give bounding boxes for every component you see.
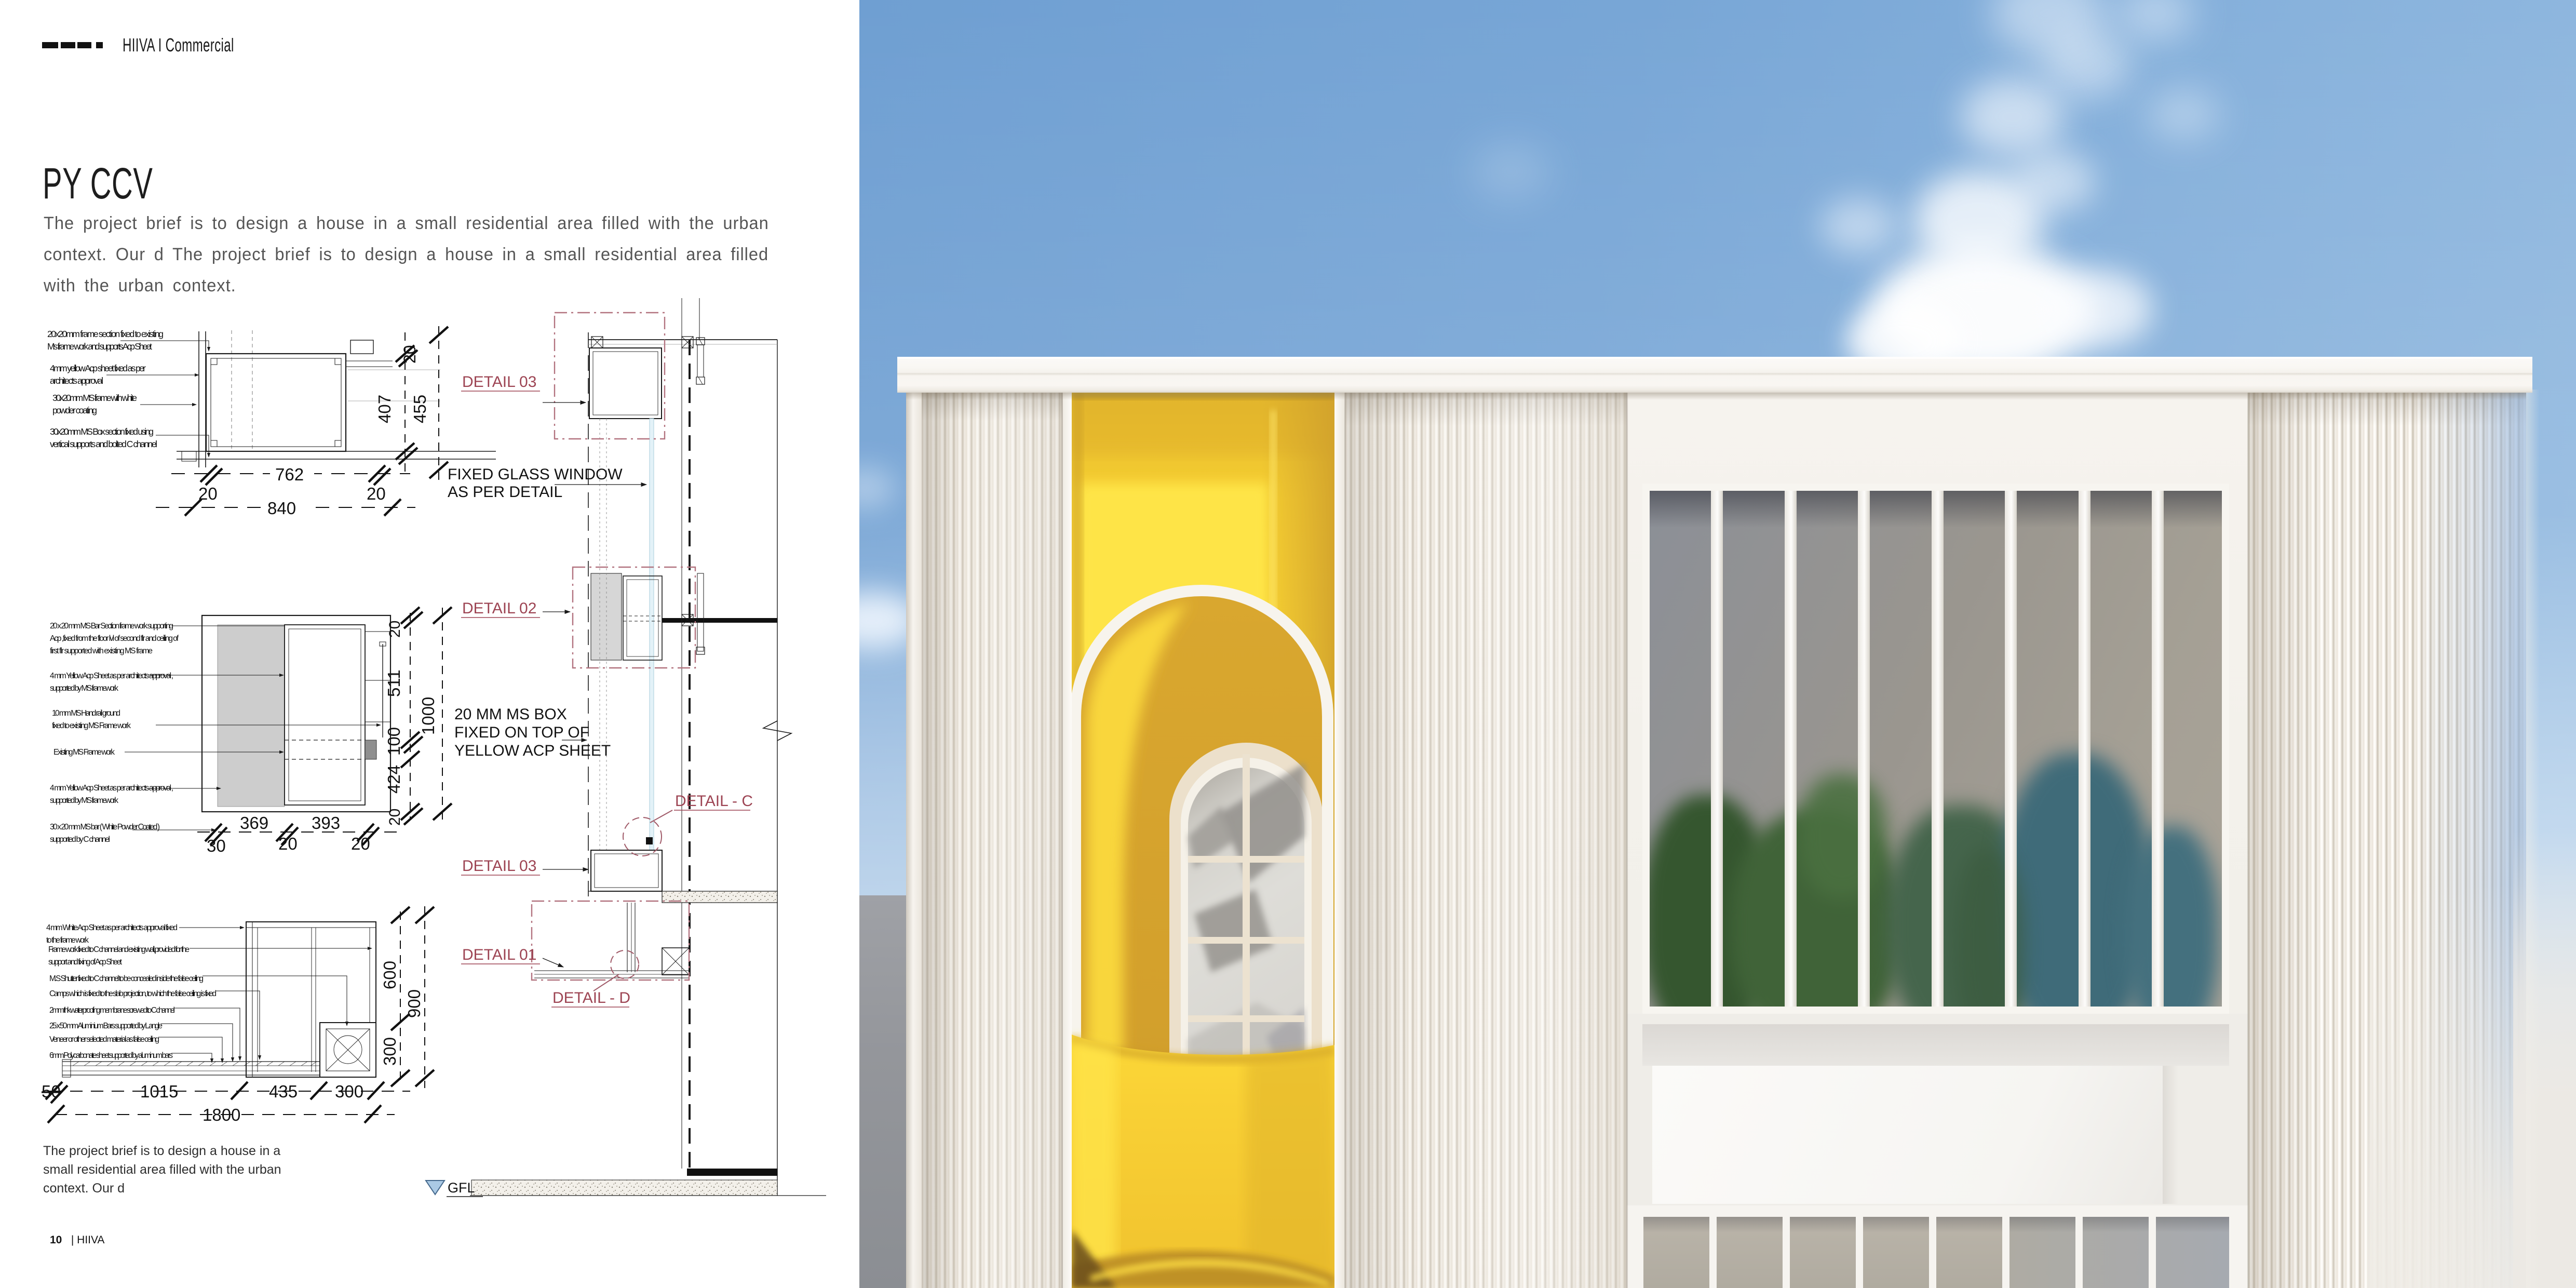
svg-text:407: 407 (375, 395, 394, 423)
svg-text:30 x 20 mm MS bar ( White Powd: 30 x 20 mm MS bar ( White Powder Coated … (50, 823, 160, 831)
svg-text:supported by MS framework: supported by MS framework (50, 684, 118, 693)
svg-text:Camps which is fixed to the sl: Camps which is fixed to the slab project… (49, 989, 217, 998)
svg-text:511: 511 (384, 669, 403, 697)
svg-text:architects approval: architects approval (50, 375, 103, 386)
svg-text:vertical supports and bolted C: vertical supports and bolted C channel (50, 439, 157, 449)
svg-text:424: 424 (384, 765, 403, 794)
svg-text:300: 300 (380, 1037, 399, 1066)
svg-text:1000: 1000 (419, 697, 438, 735)
svg-text:Veneer or other selected mater: Veneer or other selected material as fal… (49, 1035, 159, 1044)
svg-text:supported by MS framework: supported by MS framework (50, 796, 118, 805)
svg-text:900: 900 (404, 989, 424, 1018)
svg-text:1800: 1800 (203, 1105, 240, 1124)
svg-text:4 mm White Acp Sheet as per ar: 4 mm White Acp Sheet as per architects a… (46, 923, 178, 932)
svg-text:DETAIL - C: DETAIL - C (675, 793, 753, 810)
svg-text:GFL: GFL (448, 1180, 475, 1196)
svg-text:AS PER DETAIL: AS PER DETAIL (448, 484, 562, 501)
svg-text:840: 840 (267, 499, 296, 518)
svg-text:Frame work fixed to C channel: Frame work fixed to C channel and existi… (48, 945, 190, 954)
svg-text:4 mm Yellow Acp Sheet as per a: 4 mm Yellow Acp Sheet as per architects … (50, 784, 173, 793)
svg-text:fixed to existing MS Frame wo: fixed to existing MS Frame work (52, 721, 131, 730)
svg-text:FIXED ON TOP OF: FIXED ON TOP OF (454, 724, 589, 741)
svg-text:DETAIL 03: DETAIL 03 (462, 857, 536, 875)
svg-text:supported by C channel: supported by C channel (50, 835, 110, 844)
svg-text:powder coating: powder coating (52, 405, 97, 415)
svg-text:20 MM MS BOX: 20 MM MS BOX (454, 706, 567, 723)
svg-text:20: 20 (278, 834, 298, 853)
svg-text:DETAIL 03: DETAIL 03 (462, 373, 536, 391)
svg-text:30x20mm MS frame with white: 30x20mm MS frame with white (52, 393, 137, 403)
svg-text:4mm yellow Acp sheet fixed as: 4mm yellow Acp sheet fixed as per (50, 363, 146, 373)
svg-text:50: 50 (42, 1082, 61, 1101)
svg-text:20: 20 (400, 345, 419, 364)
svg-text:DETAIL 02: DETAIL 02 (462, 600, 536, 617)
svg-text:20: 20 (198, 484, 218, 503)
svg-text:30: 30 (207, 836, 226, 855)
svg-text:20: 20 (367, 484, 386, 503)
svg-text:30x20mm MS Box section fixed u: 30x20mm MS Box section fixed using (50, 426, 154, 437)
svg-text:393: 393 (312, 813, 340, 833)
svg-text:to the frame work: to the frame work (46, 936, 89, 945)
svg-text:first flr supported with exist: first flr supported with existing MS fra… (50, 647, 153, 655)
svg-text:2mm thk waterproofing membrane: 2mm thk waterproofing membrane screwed t… (49, 1006, 175, 1015)
svg-text:FIXED GLASS WINDOW: FIXED GLASS WINDOW (448, 466, 623, 483)
svg-text:762: 762 (275, 465, 304, 484)
svg-text:Acp ,fixed from the floor lvl: Acp ,fixed from the floor lvl of second … (50, 634, 179, 643)
svg-text:100: 100 (384, 727, 403, 756)
svg-text:YELLOW ACP SHEET: YELLOW ACP SHEET (454, 742, 611, 759)
svg-text:20x20mm frame section fixed t: 20x20mm frame section fixed to existing (47, 329, 164, 339)
svg-text:455: 455 (410, 395, 429, 423)
svg-text:DETAIL - D: DETAIL - D (552, 989, 630, 1007)
svg-text:20: 20 (386, 621, 403, 638)
svg-text:20: 20 (351, 834, 370, 853)
svg-text:300: 300 (335, 1082, 363, 1101)
svg-text:20 x 20 mm MS Bar Section fram: 20 x 20 mm MS Bar Section frame work sup… (50, 622, 173, 630)
svg-text:4 mm Yellow Acp Sheet as per a: 4 mm Yellow Acp Sheet as per architects … (50, 672, 173, 680)
svg-text:20: 20 (386, 809, 403, 826)
svg-text:10 mm MS Hand rail ground: 10 mm MS Hand rail ground (52, 709, 120, 718)
svg-text:600: 600 (380, 961, 399, 989)
svg-text:369: 369 (240, 813, 268, 833)
svg-text:Existing MS Frame work: Existing MS Frame work (53, 748, 115, 757)
svg-text:support and fixing of Acp Shee: support and fixing of Acp Sheet (48, 958, 123, 967)
svg-text:435: 435 (269, 1082, 298, 1101)
svg-text:DETAIL 01: DETAIL 01 (462, 946, 536, 963)
svg-text:25 x 50 mm Aluminium Bars supp: 25 x 50 mm Aluminium Bars supported by L… (49, 1022, 163, 1030)
svg-text:Ms frame work and supports Acp: Ms frame work and supports Acp Sheet (47, 341, 152, 352)
svg-text:M.S Shutter fixed to C channel: M.S Shutter fixed to C channel to be con… (49, 974, 204, 983)
svg-text:1015: 1015 (140, 1082, 178, 1101)
svg-text:6mm Polycarbonate sheet suppor: 6mm Polycarbonate sheet supported by alu… (49, 1051, 173, 1060)
